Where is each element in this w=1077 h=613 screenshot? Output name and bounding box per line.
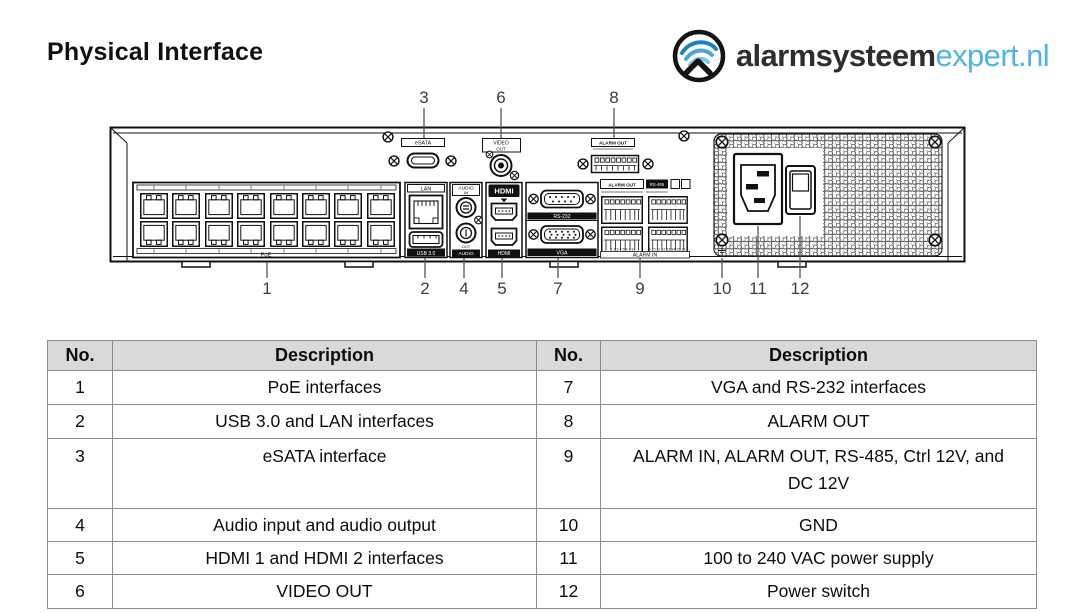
- audio-in-label: IN: [464, 190, 468, 195]
- cell-desc: Power switch: [601, 575, 1037, 609]
- cell-no: 10: [537, 509, 601, 542]
- callout-8: 8: [609, 88, 618, 107]
- poe-port-block: PoE: [133, 183, 400, 259]
- callout-4: 4: [459, 279, 468, 298]
- callout-11: 11: [749, 279, 767, 298]
- screw-icon: [679, 131, 689, 141]
- cell-desc: VGA and RS-232 interfaces: [601, 371, 1037, 405]
- rs232-label: RS-232: [554, 214, 571, 220]
- serial-vga-block: RS-232 VGA: [526, 183, 598, 258]
- lan-port: [410, 196, 443, 229]
- cell-desc: PoE interfaces: [113, 371, 537, 405]
- alarm-in-label: ALARM IN: [633, 253, 658, 259]
- screw-icon: [643, 159, 653, 169]
- screw-icon: [510, 171, 518, 179]
- callout-1: 1: [262, 279, 271, 298]
- cell-no: 7: [537, 371, 601, 405]
- alarm-out-top-label: ALARM OUT: [599, 141, 627, 146]
- audio-strip-label: AUDIO: [458, 251, 473, 257]
- table-row: 1 PoE interfaces 7 VGA and RS-232 interf…: [48, 371, 1037, 405]
- table-header-row: No. Description No. Description: [48, 341, 1037, 371]
- cell-no: 3: [48, 439, 113, 509]
- callout-3: 3: [419, 88, 428, 107]
- screw-icon: [578, 159, 588, 169]
- callout-9: 9: [635, 279, 644, 298]
- header-desc-right: Description: [601, 341, 1037, 371]
- usb-label: USB 3.0: [417, 251, 436, 257]
- interface-description-table: No. Description No. Description 1 PoE in…: [47, 340, 1037, 609]
- screw-icon: [383, 132, 393, 142]
- screw-icon: [446, 156, 456, 166]
- rear-panel-diagram: PoE eSATA VIDEO OUT ALARM OUT: [0, 84, 1077, 312]
- lan-label: LAN: [421, 186, 432, 192]
- cell-no: 2: [48, 405, 113, 439]
- lan-usb-block: LAN USB 3.0: [405, 183, 447, 258]
- brand-name-bold: alarmsysteem: [736, 38, 936, 73]
- audio-out-sub-label: OUT: [462, 244, 471, 249]
- screw-icon: [929, 136, 941, 148]
- cell-desc: HDMI 1 and HDMI 2 interfaces: [113, 542, 537, 575]
- page-title: Physical Interface: [47, 38, 263, 67]
- cell-no: 11: [537, 542, 601, 575]
- alarm-out-label: ALARM OUT: [608, 182, 636, 187]
- table-row: 5 HDMI 1 and HDMI 2 interfaces 11 100 to…: [48, 542, 1037, 575]
- callout-12: 12: [791, 279, 810, 298]
- power-inlet: [734, 154, 782, 224]
- cell-no: 6: [48, 575, 113, 609]
- cell-no: 4: [48, 509, 113, 542]
- cell-desc: eSATA interface: [113, 439, 537, 509]
- header-desc-left: Description: [113, 341, 537, 371]
- cell-desc: VIDEO OUT: [113, 575, 537, 609]
- table-row: 3 eSATA interface 9 ALARM IN, ALARM OUT,…: [48, 439, 1037, 509]
- header-no-left: No.: [48, 341, 113, 371]
- cell-desc: ALARM IN, ALARM OUT, RS-485, Ctrl 12V, a…: [601, 439, 1037, 509]
- callout-2: 2: [420, 279, 429, 298]
- hdmi-port-2: [492, 229, 517, 246]
- vga-label: VGA: [557, 250, 568, 256]
- hdmi-logo: HDMI: [494, 187, 513, 196]
- cell-no: 5: [48, 542, 113, 575]
- cell-desc: ALARM OUT: [601, 405, 1037, 439]
- callout-6: 6: [496, 88, 505, 107]
- hdmi-block: HDMI HDMI: [486, 183, 522, 258]
- rs485-label: RS-485: [650, 182, 665, 187]
- screw-icon: [389, 156, 399, 166]
- cell-desc: Audio input and audio output: [113, 509, 537, 542]
- video-out-label: OUT: [496, 146, 506, 151]
- audio-in-jack: [457, 198, 476, 217]
- alarm-in-numbers-left: 1 2 3 4 5 6 7 8: [611, 247, 634, 251]
- audio-out-jack: [457, 224, 476, 243]
- cell-no: 12: [537, 575, 601, 609]
- cell-desc-text: ALARM IN, ALARM OUT, RS-485, Ctrl 12V, a…: [620, 443, 1018, 497]
- cell-no: 9: [537, 439, 601, 509]
- cell-desc: 100 to 240 VAC power supply: [601, 542, 1037, 575]
- cell-no: 8: [537, 405, 601, 439]
- usb-port: [410, 232, 443, 247]
- page: Physical Interface alarmsysteemexpert.nl: [0, 0, 1077, 613]
- screw-icon: [475, 216, 483, 224]
- cell-no: 1: [48, 371, 113, 405]
- hdmi-port-1: [492, 204, 517, 221]
- callout-7: 7: [553, 279, 562, 298]
- screw-icon: [486, 151, 493, 158]
- audio-block: AUDIO IN OUT AUDIO: [450, 183, 482, 258]
- screw-icon: [716, 136, 728, 148]
- screw-icon: [929, 234, 941, 246]
- table-row: 6 VIDEO OUT 12 Power switch: [48, 575, 1037, 609]
- power-section: [714, 134, 942, 256]
- wifi-house-icon: [671, 28, 727, 84]
- alarm-in-numbers-right: 9 10 11 12 13 14 15 16: [649, 247, 686, 251]
- brand-name: alarmsysteemexpert.nl: [736, 38, 1049, 74]
- poe-label: PoE: [261, 252, 272, 258]
- callout-10: 10: [713, 279, 732, 298]
- cell-desc: USB 3.0 and LAN interfaces: [113, 405, 537, 439]
- brand-logo: alarmsysteemexpert.nl: [671, 28, 1049, 84]
- hdmi-strip-label: HDMI: [498, 251, 511, 257]
- table-row: 4 Audio input and audio output 10 GND: [48, 509, 1037, 542]
- table-row: 2 USB 3.0 and LAN interfaces 8 ALARM OUT: [48, 405, 1037, 439]
- brand-name-light: expert.nl: [936, 38, 1050, 73]
- power-switch: [786, 166, 815, 214]
- header-no-right: No.: [537, 341, 601, 371]
- cell-desc: GND: [601, 509, 1037, 542]
- esata-label: eSATA: [415, 141, 432, 147]
- callout-5: 5: [497, 279, 506, 298]
